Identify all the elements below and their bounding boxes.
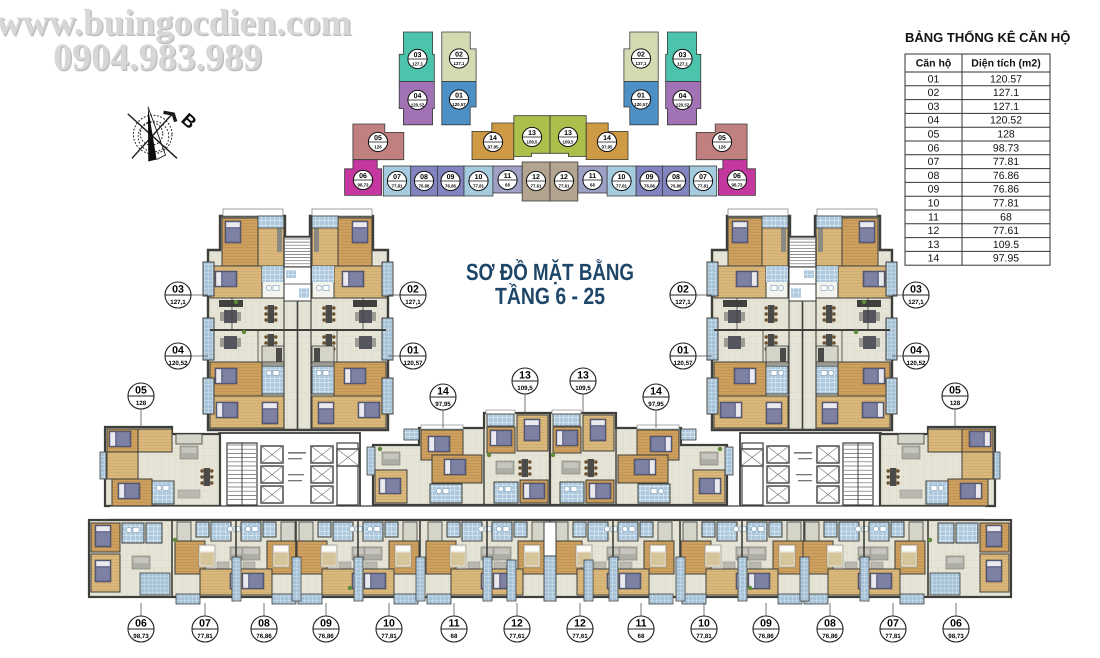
svg-text:05: 05 — [718, 135, 726, 142]
svg-text:02: 02 — [455, 52, 463, 59]
svg-text:06: 06 — [135, 618, 147, 630]
svg-text:03: 03 — [172, 284, 184, 296]
svg-text:76,86: 76,86 — [671, 184, 683, 189]
svg-text:77,61: 77,61 — [531, 184, 543, 189]
svg-text:12: 12 — [928, 225, 940, 237]
svg-text:03: 03 — [679, 52, 687, 59]
svg-text:128: 128 — [374, 145, 382, 150]
svg-text:68: 68 — [638, 633, 645, 640]
svg-text:05: 05 — [374, 135, 382, 142]
svg-text:05: 05 — [135, 385, 147, 397]
svg-text:77,81: 77,81 — [616, 184, 628, 189]
svg-text:109,5: 109,5 — [517, 385, 533, 392]
svg-text:76,86: 76,86 — [445, 184, 457, 189]
svg-text:76,86: 76,86 — [822, 633, 838, 640]
svg-text:11: 11 — [928, 211, 939, 223]
svg-text:11: 11 — [635, 618, 646, 630]
svg-text:76.86: 76.86 — [993, 184, 1019, 196]
svg-text:13: 13 — [564, 130, 572, 137]
svg-text:128: 128 — [997, 129, 1015, 141]
svg-text:TẦNG 6 - 25: TẦNG 6 - 25 — [495, 282, 605, 309]
svg-text:97,95: 97,95 — [435, 401, 451, 408]
svg-text:12: 12 — [560, 174, 568, 181]
svg-text:14: 14 — [928, 253, 940, 265]
svg-text:07: 07 — [887, 618, 899, 630]
svg-text:14: 14 — [603, 135, 611, 142]
svg-text:04: 04 — [679, 93, 687, 100]
svg-text:13: 13 — [519, 370, 531, 382]
svg-text:77,81: 77,81 — [698, 184, 710, 189]
svg-text:13: 13 — [528, 130, 536, 137]
svg-text:01: 01 — [455, 93, 463, 100]
svg-text:120,52: 120,52 — [907, 360, 926, 367]
svg-text:120,52: 120,52 — [169, 360, 188, 367]
svg-text:76,86: 76,86 — [318, 633, 334, 640]
svg-text:10: 10 — [928, 198, 940, 210]
svg-text:68: 68 — [451, 633, 458, 640]
svg-text:04: 04 — [910, 345, 922, 357]
svg-text:76,86: 76,86 — [419, 184, 431, 189]
svg-text:09: 09 — [447, 174, 455, 181]
svg-text:03: 03 — [910, 284, 922, 296]
svg-text:77,81: 77,81 — [885, 633, 901, 640]
svg-text:76.86: 76.86 — [993, 170, 1019, 182]
svg-text:127,1: 127,1 — [677, 62, 689, 67]
svg-text:120,52: 120,52 — [676, 103, 690, 108]
svg-text:06: 06 — [928, 142, 940, 154]
svg-text:77,61: 77,61 — [572, 633, 588, 640]
svg-text:77,61: 77,61 — [559, 184, 571, 189]
svg-text:127,1: 127,1 — [454, 61, 466, 66]
svg-text:06: 06 — [950, 618, 962, 630]
svg-text:14: 14 — [489, 135, 497, 142]
svg-text:01: 01 — [677, 345, 689, 357]
svg-text:13: 13 — [577, 370, 589, 382]
svg-text:77.61: 77.61 — [993, 225, 1019, 237]
svg-text:10: 10 — [383, 618, 395, 630]
svg-text:120,52: 120,52 — [411, 103, 425, 108]
svg-text:07: 07 — [928, 156, 940, 168]
svg-text:97.95: 97.95 — [993, 253, 1019, 265]
svg-text:06: 06 — [359, 173, 367, 180]
svg-text:98,73: 98,73 — [358, 183, 370, 188]
svg-text:77,81: 77,81 — [696, 633, 712, 640]
svg-text:05: 05 — [928, 129, 940, 141]
svg-text:98,73: 98,73 — [948, 633, 964, 640]
svg-text:97,95: 97,95 — [602, 145, 614, 150]
svg-text:12: 12 — [532, 174, 540, 181]
svg-text:68: 68 — [1000, 211, 1012, 223]
svg-text:127.1: 127.1 — [993, 101, 1019, 113]
svg-text:02: 02 — [407, 284, 419, 296]
svg-text:98.73: 98.73 — [993, 142, 1019, 154]
svg-text:76,86: 76,86 — [256, 633, 272, 640]
svg-text:03: 03 — [414, 52, 422, 59]
svg-text:127,1: 127,1 — [412, 62, 424, 67]
svg-text:09: 09 — [646, 174, 654, 181]
svg-text:01: 01 — [928, 73, 940, 85]
svg-text:98,73: 98,73 — [732, 183, 744, 188]
svg-text:04: 04 — [172, 345, 184, 357]
svg-text:120,57: 120,57 — [404, 360, 423, 367]
svg-text:Diện tích (m2): Diện tích (m2) — [971, 58, 1040, 70]
svg-text:120,57: 120,57 — [452, 102, 466, 107]
svg-text:02: 02 — [637, 52, 645, 59]
svg-text:11: 11 — [589, 173, 597, 180]
svg-text:120,57: 120,57 — [674, 360, 693, 367]
svg-text:05: 05 — [949, 385, 961, 397]
svg-text:08: 08 — [258, 618, 270, 630]
svg-text:12: 12 — [574, 618, 586, 630]
svg-text:SƠ ĐỒ MẶT BẰNG: SƠ ĐỒ MẶT BẰNG — [466, 258, 634, 285]
svg-text:128: 128 — [136, 400, 147, 407]
svg-text:127,1: 127,1 — [908, 299, 924, 306]
svg-text:77,81: 77,81 — [381, 633, 397, 640]
svg-text:109,5: 109,5 — [575, 385, 591, 392]
svg-text:04: 04 — [414, 93, 422, 100]
svg-text:127,1: 127,1 — [170, 299, 186, 306]
svg-text:07: 07 — [699, 174, 707, 181]
svg-text:BẢNG THỐNG KÊ CĂN HỘ: BẢNG THỐNG KÊ CĂN HỘ — [905, 30, 1070, 45]
svg-text:01: 01 — [637, 93, 645, 100]
svg-text:76,86: 76,86 — [758, 633, 774, 640]
svg-text:127,1: 127,1 — [405, 299, 421, 306]
svg-text:13: 13 — [928, 239, 940, 251]
svg-text:11: 11 — [448, 618, 459, 630]
svg-text:06: 06 — [733, 173, 741, 180]
svg-text:77.81: 77.81 — [993, 156, 1019, 168]
svg-text:08: 08 — [420, 174, 428, 181]
svg-text:02: 02 — [677, 284, 689, 296]
svg-text:11: 11 — [504, 173, 512, 180]
svg-text:10: 10 — [475, 174, 483, 181]
svg-text:77.81: 77.81 — [993, 198, 1019, 210]
svg-text:07: 07 — [393, 174, 401, 181]
svg-text:77,81: 77,81 — [392, 184, 404, 189]
svg-text:08: 08 — [928, 170, 940, 182]
svg-text:120.52: 120.52 — [990, 115, 1022, 127]
svg-text:109,5: 109,5 — [563, 140, 575, 145]
svg-text:109.5: 109.5 — [993, 239, 1019, 251]
svg-text:109,5: 109,5 — [527, 140, 539, 145]
svg-text:0904.983.989: 0904.983.989 — [53, 37, 262, 79]
svg-text:10: 10 — [618, 174, 626, 181]
svg-text:120.57: 120.57 — [990, 73, 1022, 85]
svg-text:12: 12 — [511, 618, 523, 630]
svg-text:09: 09 — [928, 184, 940, 196]
svg-text:08: 08 — [824, 618, 836, 630]
svg-text:02: 02 — [928, 87, 940, 99]
svg-text:09: 09 — [760, 618, 772, 630]
svg-text:77,81: 77,81 — [197, 633, 213, 640]
svg-text:127,1: 127,1 — [675, 299, 691, 306]
svg-text:07: 07 — [199, 618, 211, 630]
svg-text:127.1: 127.1 — [993, 87, 1019, 99]
svg-text:127,1: 127,1 — [636, 61, 648, 66]
svg-text:Căn hộ: Căn hộ — [916, 58, 952, 70]
svg-text:01: 01 — [407, 345, 419, 357]
svg-text:128: 128 — [950, 400, 961, 407]
svg-text:120,57: 120,57 — [634, 102, 648, 107]
svg-text:09: 09 — [320, 618, 332, 630]
svg-text:04: 04 — [928, 115, 940, 127]
svg-text:128: 128 — [718, 145, 726, 150]
svg-text:77,81: 77,81 — [473, 184, 485, 189]
svg-text:03: 03 — [928, 101, 940, 113]
svg-text:98,73: 98,73 — [133, 633, 149, 640]
svg-text:14: 14 — [650, 386, 662, 398]
svg-text:76,86: 76,86 — [644, 184, 656, 189]
svg-text:08: 08 — [672, 174, 680, 181]
svg-text:97,95: 97,95 — [648, 401, 664, 408]
svg-text:10: 10 — [698, 618, 710, 630]
svg-text:77,61: 77,61 — [509, 633, 525, 640]
svg-text:97,95: 97,95 — [488, 145, 500, 150]
svg-text:68: 68 — [590, 183, 595, 188]
svg-text:68: 68 — [505, 183, 510, 188]
svg-text:14: 14 — [437, 386, 449, 398]
